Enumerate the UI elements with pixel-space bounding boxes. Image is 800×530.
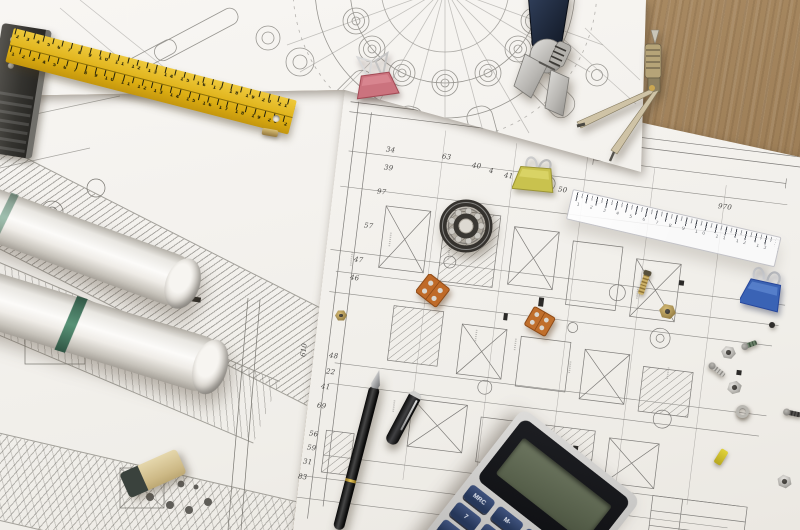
binder-clip-blue bbox=[740, 264, 790, 314]
binder-clip-pink bbox=[352, 50, 400, 100]
compass-screw bbox=[649, 85, 655, 91]
terminal-block bbox=[416, 274, 452, 310]
dim-label: 69 bbox=[317, 401, 327, 410]
dim-970: 970 bbox=[718, 202, 733, 212]
terminal-block bbox=[524, 306, 558, 340]
ball-bearing bbox=[438, 198, 494, 254]
bearing-bore bbox=[460, 220, 473, 233]
dim-label: 31 bbox=[303, 457, 313, 466]
dim-label: 50 bbox=[558, 185, 568, 194]
desk-scene: 34 39 97 57 47 46 63 40 4 41 15 50 48 22… bbox=[0, 0, 800, 530]
dim-label: 40 bbox=[472, 161, 482, 170]
washer bbox=[736, 405, 749, 418]
clip-body bbox=[354, 71, 399, 99]
bolt-head bbox=[769, 322, 775, 328]
dim-label: 47 bbox=[354, 255, 364, 264]
dim-610: 610 bbox=[299, 343, 309, 358]
block-body bbox=[416, 274, 450, 307]
dim-label: 4 bbox=[489, 167, 495, 176]
dim-label: 63 bbox=[442, 152, 452, 161]
dim-label: 41 bbox=[321, 382, 331, 391]
roll-band-green bbox=[0, 192, 19, 244]
clip-wire bbox=[358, 56, 374, 78]
compass-point-right bbox=[610, 152, 614, 161]
dim-label: 97 bbox=[377, 187, 387, 196]
pen-gold-ring bbox=[345, 478, 356, 484]
dim-label: 59 bbox=[307, 443, 317, 452]
dim-label: 22 bbox=[326, 367, 336, 376]
compass-tip bbox=[651, 30, 659, 44]
dim-label: 83 bbox=[298, 472, 308, 481]
dim-label: 34 bbox=[386, 145, 396, 154]
compass-point-left bbox=[577, 124, 585, 126]
dim-label: 46 bbox=[350, 273, 360, 282]
dim-label: 56 bbox=[309, 429, 319, 438]
dim-label: 48 bbox=[329, 351, 339, 360]
drafting-compass bbox=[555, 28, 675, 163]
compass-barrel bbox=[645, 44, 661, 78]
dim-label: 39 bbox=[384, 163, 394, 172]
binder-clip-yellow bbox=[512, 152, 558, 198]
roll-band-green bbox=[54, 296, 87, 353]
clip-wire bbox=[375, 53, 391, 75]
dim-label: 57 bbox=[364, 221, 374, 230]
